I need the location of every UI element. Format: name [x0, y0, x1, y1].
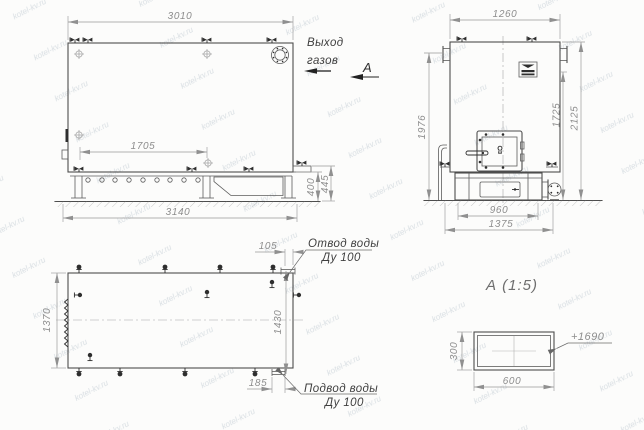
dim-1375-text: 1375 [489, 219, 514, 230]
detail-title: А (1:5) [485, 277, 538, 294]
dim-400-text: 400 [306, 178, 317, 197]
section-letter-text: А [362, 60, 372, 75]
dim-105-text: 105 [259, 241, 278, 252]
level-gauge-mark [66, 129, 69, 142]
technical-drawing-canvas: kotel-kv.ru [0, 0, 644, 430]
gas-outlet-text-line2: газов [307, 55, 338, 67]
inlet-label-line2: Ду 100 [323, 397, 364, 409]
dim-1260-text: 1260 [493, 9, 518, 20]
dim-960-text: 960 [490, 205, 509, 216]
dim-185-text: 185 [249, 378, 268, 389]
elevation-text: +1690 [571, 331, 605, 343]
dim-2125-text: 2125 [570, 106, 581, 132]
dim-445-text: 445 [320, 175, 331, 194]
dim-600-text: 600 [503, 376, 522, 387]
dim-1370-text: 1370 [42, 308, 53, 333]
inlet-label-line1: Подвод воды [304, 383, 378, 395]
dim-1705-text: 1705 [131, 141, 156, 152]
dim-1430-text: 1430 [273, 310, 284, 335]
dim-1725-text: 1725 [552, 103, 563, 128]
outlet-label-line2: Ду 100 [320, 252, 361, 264]
side-ground [424, 201, 602, 207]
dim-3140-text: 3140 [166, 207, 191, 218]
gas-outlet-text-line1: Выход [307, 37, 344, 49]
dim-300-text: 300 [449, 342, 460, 361]
dim-1976-text: 1976 [417, 115, 428, 140]
outlet-label-line1: Отвод воды [308, 238, 379, 250]
dim-3010-text: 3010 [168, 11, 193, 22]
drawing-page: kotel-kv.ru [0, 0, 644, 430]
